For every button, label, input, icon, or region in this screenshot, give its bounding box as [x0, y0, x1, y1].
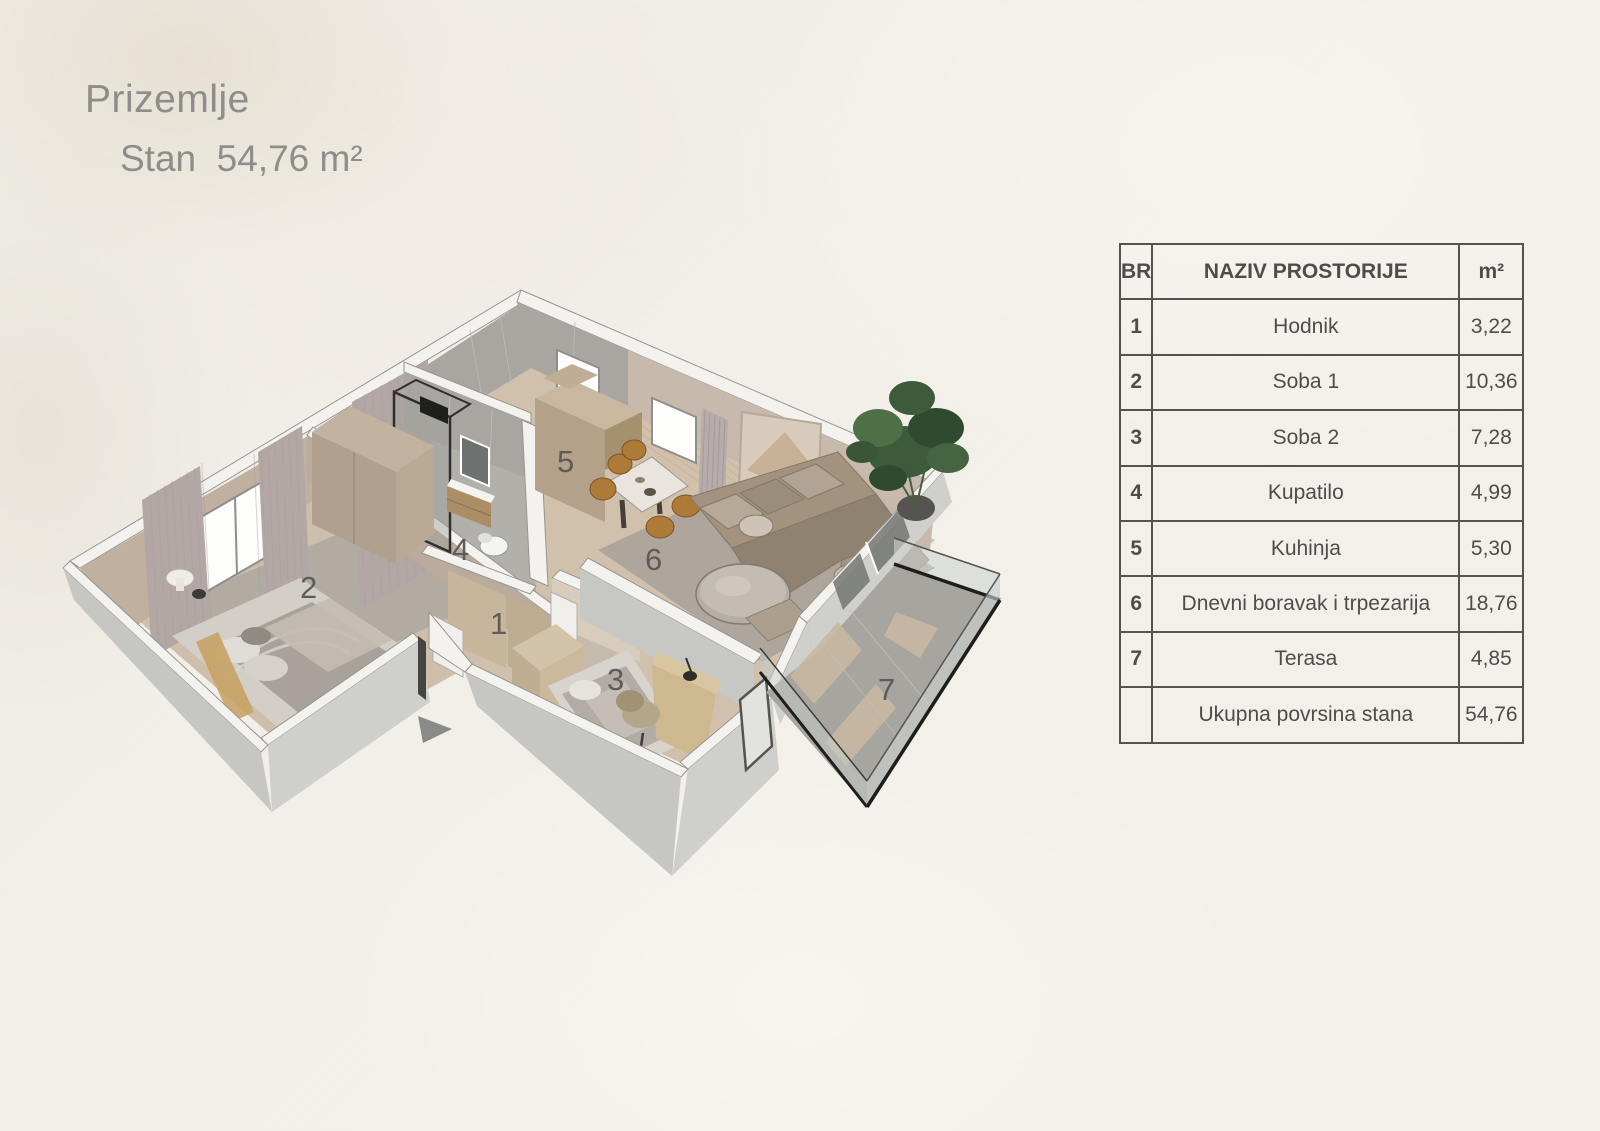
- svg-text:2: 2: [300, 570, 317, 605]
- svg-text:6: 6: [645, 542, 662, 577]
- svg-text:3: 3: [607, 662, 624, 697]
- svg-text:1: 1: [490, 606, 507, 641]
- svg-text:5: 5: [557, 444, 574, 479]
- svg-text:7: 7: [878, 672, 895, 707]
- svg-text:4: 4: [452, 532, 469, 567]
